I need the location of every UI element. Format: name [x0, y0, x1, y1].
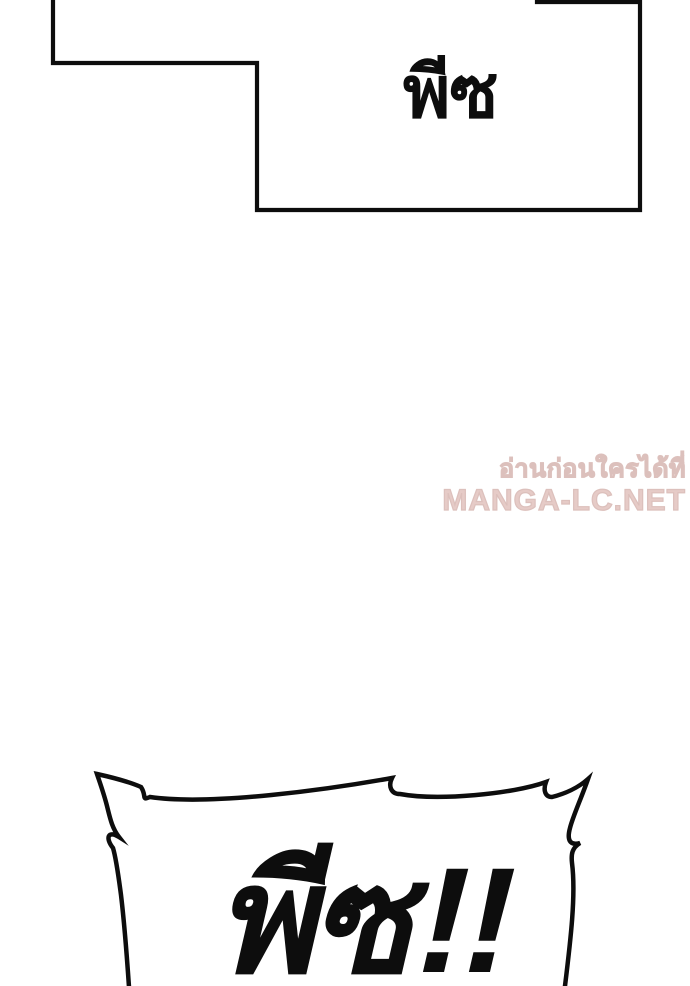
watermark-site-name: MANGA-LC.NET [442, 486, 686, 516]
watermark-thai-tagline: อ่านก่อนใครได้ที่ [442, 457, 686, 482]
watermark: อ่านก่อนใครได้ที่ MANGA-LC.NET [442, 457, 686, 516]
top-bubble-text: พีซ [403, 52, 495, 135]
burst-bubble-text: พีซ!! [209, 838, 507, 986]
manga-page: พีซ พีซ!! อ่านก่อนใครได้ที่ MANGA-LC.NET [0, 0, 690, 986]
top-speech-bubble-outline [53, 0, 640, 210]
